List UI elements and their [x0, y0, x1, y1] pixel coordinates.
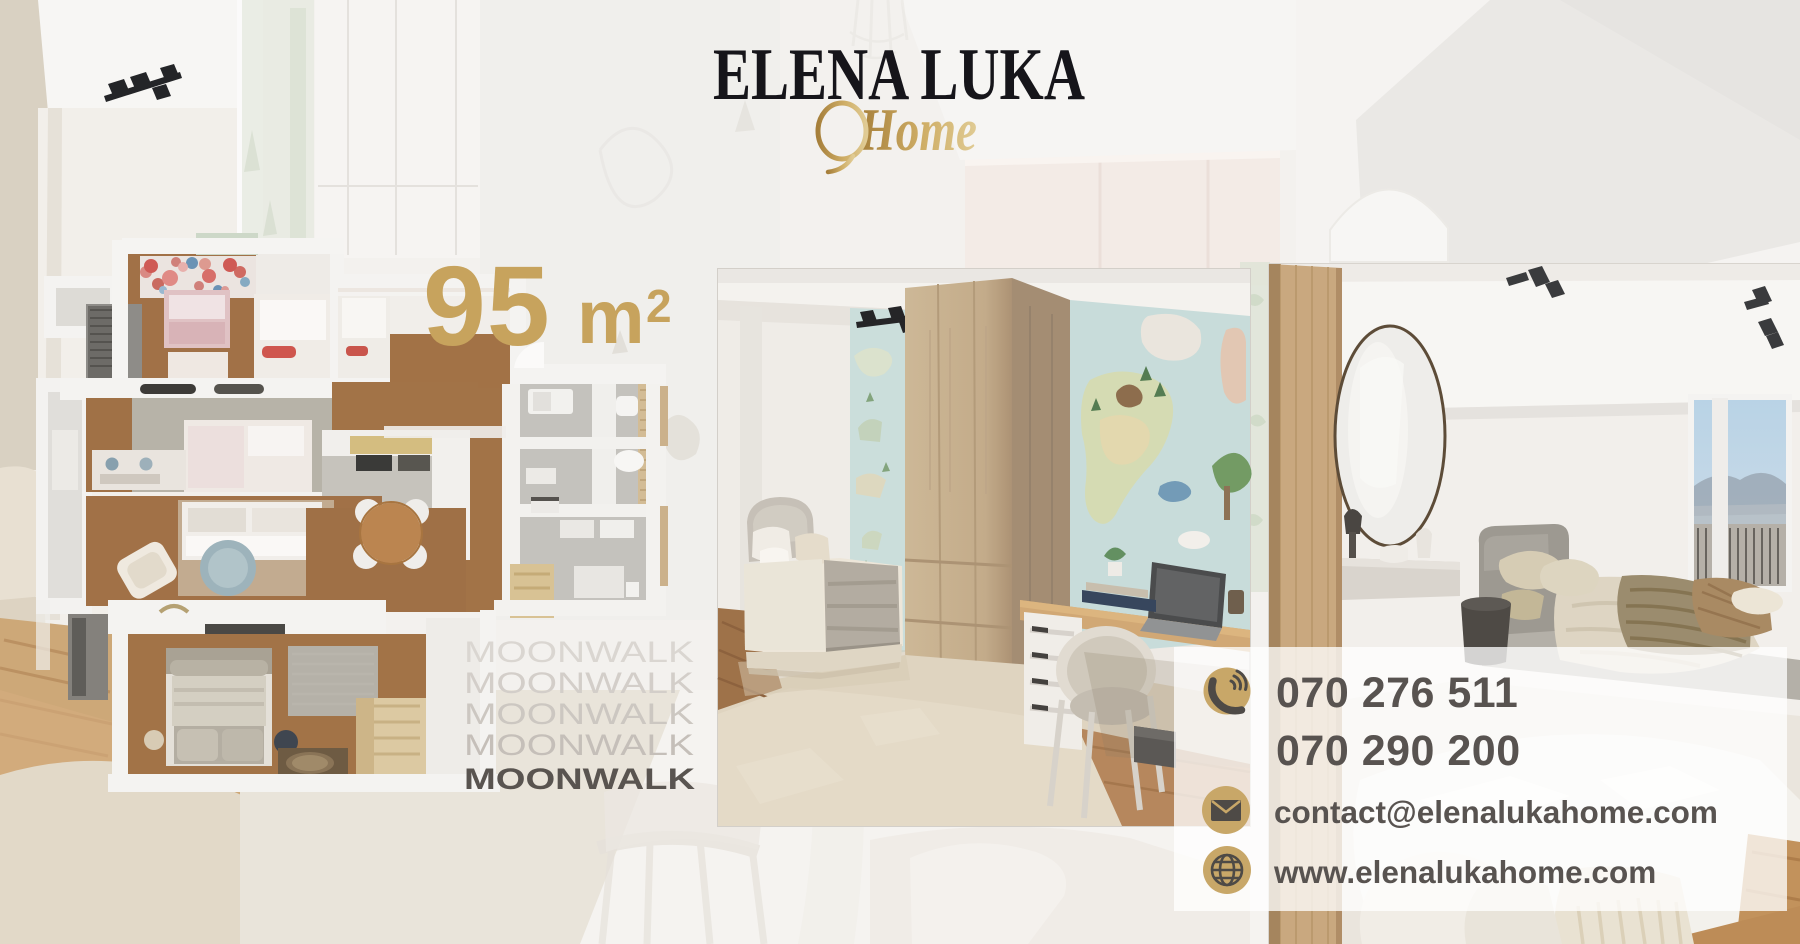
svg-text:www.elenalukahome.com: www.elenalukahome.com: [1273, 854, 1656, 890]
svg-text:MOONWALK: MOONWALK: [464, 698, 694, 731]
svg-text:95: 95: [423, 243, 551, 369]
svg-text:MOONWALK: MOONWALK: [464, 763, 695, 796]
svg-text:MOONWALK: MOONWALK: [464, 636, 694, 669]
svg-text:070 290 200: 070 290 200: [1276, 727, 1521, 775]
svg-text:MOONWALK: MOONWALK: [464, 667, 694, 700]
svg-text:MOONWALK: MOONWALK: [464, 729, 694, 762]
svg-text:Home: Home: [858, 97, 977, 163]
svg-text:m: m: [577, 275, 645, 360]
svg-text:2: 2: [646, 280, 672, 332]
svg-text:070 276 511: 070 276 511: [1276, 669, 1518, 717]
svg-text:contact@elenalukahome.com: contact@elenalukahome.com: [1274, 794, 1718, 830]
